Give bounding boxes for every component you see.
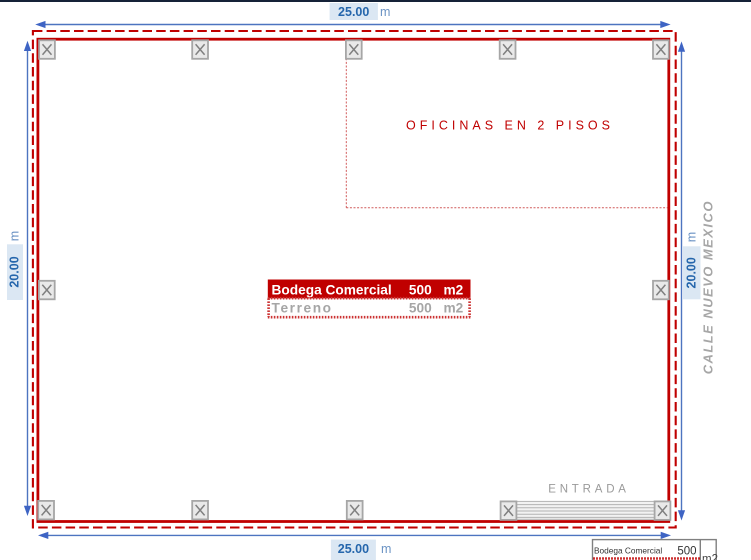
- svg-text:500: 500: [409, 301, 432, 316]
- svg-text:m2: m2: [444, 282, 464, 297]
- svg-text:m2: m2: [444, 301, 464, 316]
- svg-text:m: m: [380, 5, 390, 19]
- svg-text:20.00: 20.00: [685, 257, 699, 288]
- svg-text:m: m: [381, 542, 391, 556]
- svg-text:OFICINAS EN 2 PISOS: OFICINAS EN 2 PISOS: [406, 119, 614, 133]
- svg-text:Bodega Comercial: Bodega Comercial: [594, 546, 662, 556]
- svg-text:m2: m2: [702, 554, 718, 560]
- svg-text:Bodega Comercial: Bodega Comercial: [272, 282, 392, 297]
- svg-text:500: 500: [677, 546, 696, 558]
- svg-text:500: 500: [409, 282, 432, 297]
- svg-text:m: m: [685, 232, 699, 242]
- svg-text:CALLE NUEVO MEXICO: CALLE NUEVO MEXICO: [701, 200, 716, 374]
- svg-text:m: m: [8, 231, 22, 241]
- svg-text:Terreno: Terreno: [272, 301, 333, 316]
- svg-text:25.00: 25.00: [338, 5, 369, 19]
- svg-text:25.00: 25.00: [338, 542, 369, 556]
- svg-text:20.00: 20.00: [8, 256, 22, 287]
- svg-text:ENTRADA: ENTRADA: [548, 484, 630, 496]
